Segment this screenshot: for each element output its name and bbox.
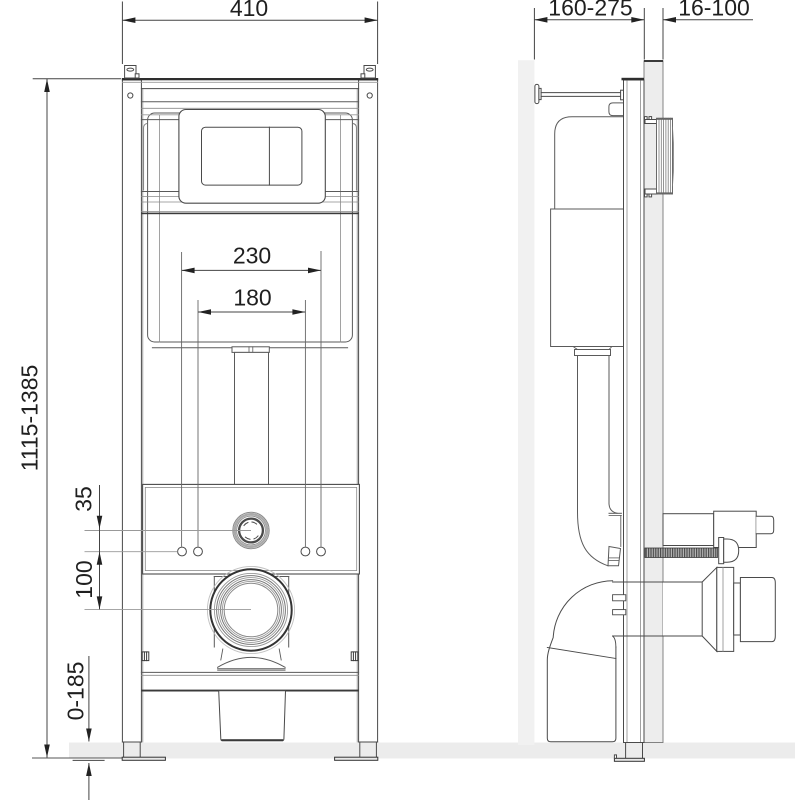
svg-text:100: 100 bbox=[71, 560, 97, 598]
svg-text:35: 35 bbox=[71, 486, 97, 512]
svg-text:16-100: 16-100 bbox=[678, 0, 750, 21]
svg-text:230: 230 bbox=[233, 243, 271, 269]
svg-text:1115-1385: 1115-1385 bbox=[16, 365, 42, 472]
svg-text:0-185: 0-185 bbox=[63, 662, 89, 721]
svg-text:160-275: 160-275 bbox=[548, 0, 632, 21]
svg-text:180: 180 bbox=[233, 285, 271, 311]
svg-text:410: 410 bbox=[230, 0, 268, 21]
